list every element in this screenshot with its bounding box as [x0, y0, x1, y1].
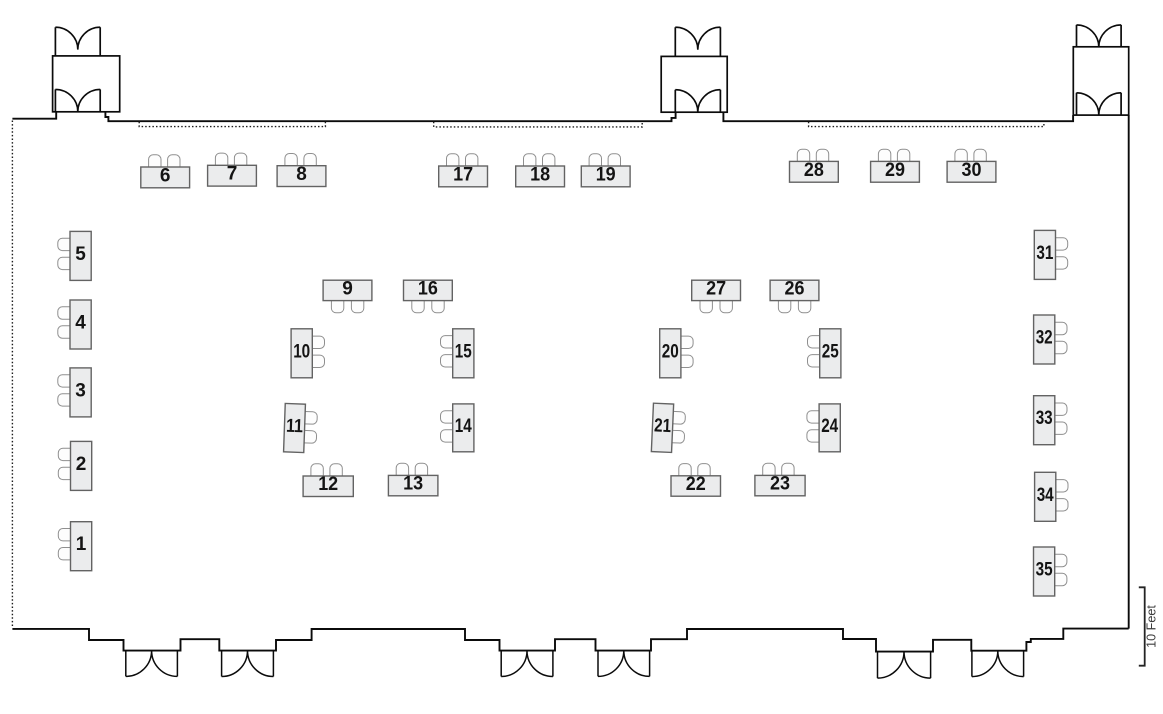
- svg-text:31: 31: [1036, 243, 1053, 264]
- svg-text:10 Feet: 10 Feet: [1144, 605, 1158, 648]
- svg-text:29: 29: [885, 160, 905, 181]
- svg-text:12: 12: [318, 474, 338, 495]
- svg-text:11: 11: [286, 416, 304, 438]
- svg-text:30: 30: [962, 160, 982, 181]
- svg-text:10: 10: [293, 341, 310, 362]
- svg-text:24: 24: [821, 416, 838, 437]
- svg-text:9: 9: [342, 278, 353, 299]
- svg-text:19: 19: [596, 164, 616, 185]
- svg-text:5: 5: [75, 244, 86, 265]
- svg-text:23: 23: [770, 474, 790, 495]
- svg-text:28: 28: [804, 160, 824, 181]
- svg-text:16: 16: [418, 278, 438, 299]
- svg-text:2: 2: [76, 454, 87, 475]
- svg-text:15: 15: [455, 341, 472, 362]
- svg-text:25: 25: [822, 341, 839, 362]
- svg-text:17: 17: [453, 164, 473, 185]
- svg-text:34: 34: [1037, 485, 1054, 506]
- svg-text:21: 21: [654, 415, 672, 437]
- svg-text:8: 8: [296, 164, 307, 185]
- svg-text:35: 35: [1036, 560, 1053, 581]
- svg-text:18: 18: [530, 164, 550, 185]
- svg-text:32: 32: [1036, 328, 1053, 349]
- svg-text:1: 1: [76, 534, 87, 555]
- svg-text:13: 13: [403, 474, 423, 495]
- svg-text:14: 14: [455, 416, 472, 437]
- svg-text:3: 3: [75, 380, 86, 401]
- svg-text:7: 7: [227, 164, 238, 185]
- svg-text:22: 22: [686, 474, 706, 495]
- svg-text:6: 6: [160, 165, 171, 186]
- svg-text:27: 27: [706, 278, 726, 299]
- svg-text:20: 20: [662, 341, 679, 362]
- svg-text:26: 26: [785, 278, 805, 299]
- svg-text:33: 33: [1036, 408, 1053, 429]
- svg-text:4: 4: [75, 313, 86, 334]
